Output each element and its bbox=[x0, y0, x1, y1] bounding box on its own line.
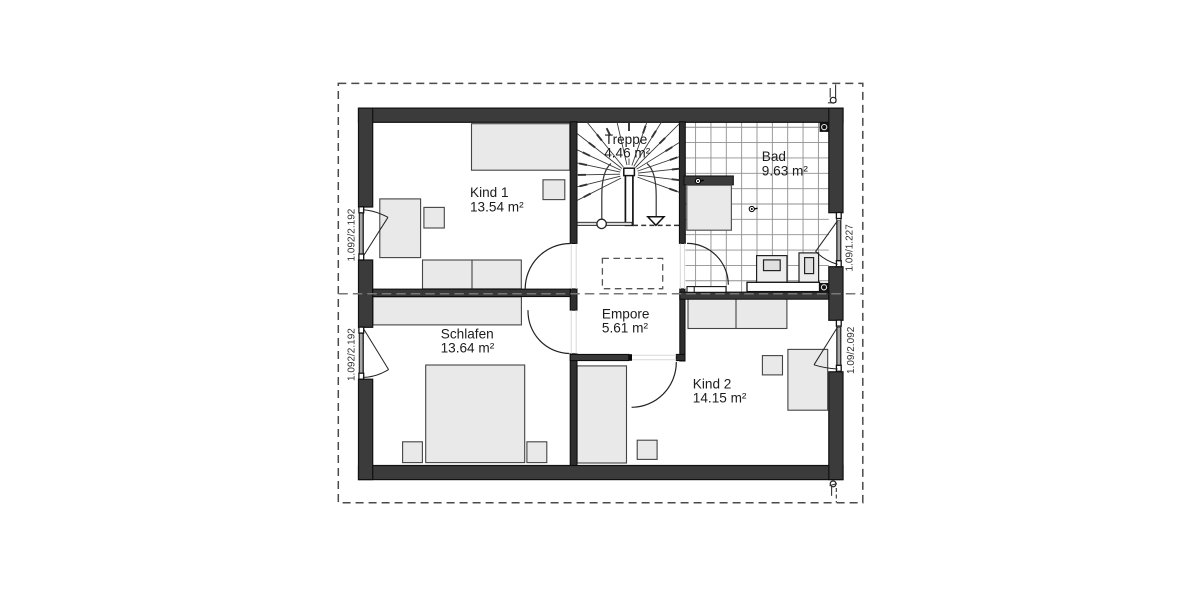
svg-text:1.092/2.192: 1.092/2.192 bbox=[347, 208, 358, 261]
svg-text:4.46 m²: 4.46 m² bbox=[604, 146, 651, 161]
svg-text:1.092/2.192: 1.092/2.192 bbox=[347, 328, 358, 381]
svg-text:14.15 m²: 14.15 m² bbox=[693, 390, 747, 405]
svg-text:13.54 m²: 13.54 m² bbox=[470, 199, 524, 214]
svg-text:Bad: Bad bbox=[762, 149, 786, 164]
svg-text:1.09/1.227: 1.09/1.227 bbox=[845, 224, 856, 272]
svg-text:Schlafen: Schlafen bbox=[441, 327, 494, 342]
svg-text:Kind 1: Kind 1 bbox=[470, 185, 509, 200]
svg-text:1.09/2.092: 1.09/2.092 bbox=[846, 326, 857, 374]
svg-text:13.64 m²: 13.64 m² bbox=[441, 341, 495, 356]
svg-text:5.61 m²: 5.61 m² bbox=[602, 321, 649, 336]
svg-text:Treppe: Treppe bbox=[605, 132, 648, 147]
svg-text:Empore: Empore bbox=[602, 307, 650, 322]
svg-text:9.63 m²: 9.63 m² bbox=[762, 163, 809, 178]
svg-text:Kind 2: Kind 2 bbox=[693, 376, 732, 391]
